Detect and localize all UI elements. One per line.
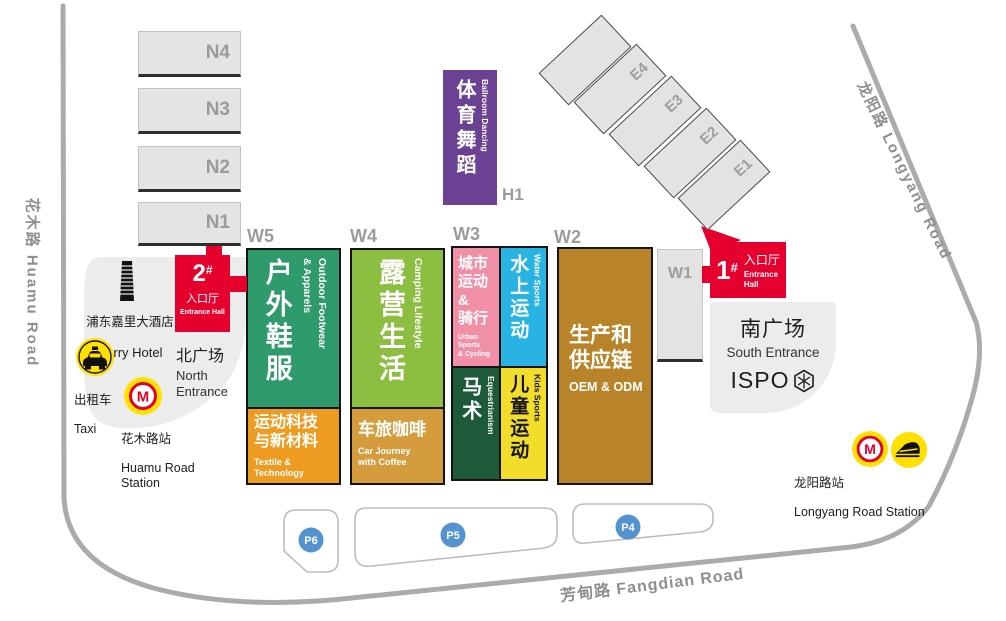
hall-n1: N1 — [138, 202, 241, 246]
car-title-en: Car Journey with Coffee — [358, 446, 437, 468]
taxi-zh: 出租车 — [74, 393, 112, 408]
kerry-hotel-zh: 浦东嘉里大酒店 — [80, 315, 180, 330]
taxi-label: 出租车 Taxi — [74, 378, 112, 452]
equestrian-title-zh: 马术 — [456, 376, 485, 479]
urban-title-en: Urban Sports & Cycling — [458, 334, 494, 359]
water-title-en: Water Sports — [532, 254, 542, 366]
longyang-station-label: 龙阳路站 Longyang Road Station — [794, 461, 925, 535]
parking-badge-p6-label: P6 — [304, 535, 317, 547]
parking-lot-p4 — [573, 504, 713, 543]
hall-n3: N3 — [138, 88, 241, 134]
hall-e2-label: E2 — [696, 123, 721, 148]
svg-text:M: M — [864, 442, 876, 458]
camping-title-zh: 露营生活 — [371, 258, 410, 407]
entrance-2-label-en: Entrance Hall — [175, 309, 230, 316]
pavilion-ballroom-dancing: 体育舞蹈 Ballroom Dancing — [443, 70, 497, 205]
pavilion-kids-sports: 儿童运动 Kids Sports — [501, 368, 547, 479]
entrance-1-number: 1 — [716, 255, 730, 285]
outdoor-title-zh: 户外鞋服 — [258, 258, 297, 407]
entrance-2-right-connector — [228, 276, 247, 292]
oem-title-zh: 生产和 供应链 — [569, 324, 632, 372]
taxi-icon — [75, 337, 115, 377]
hall-n2: N2 — [138, 146, 241, 192]
camping-title-en: Camping Lifestyle — [412, 258, 424, 407]
pavilion-oem-odm: 生产和 供应链 OEM & ODM — [557, 247, 653, 485]
pavilion-camping-lifestyle: 露营生活 Camping Lifestyle — [352, 250, 443, 407]
hall-e1-label: E1 — [730, 155, 755, 180]
outdoor-title-en: Outdoor Footwear & Apparels — [299, 258, 329, 407]
huamu-metro-icon: M — [123, 376, 163, 416]
hall-n2-label: N2 — [206, 157, 230, 179]
textile-title-zh: 运动科技 与新材料 — [254, 414, 333, 452]
section-label-w2: W2 — [554, 227, 581, 248]
venue-map: P6 P5 P4 N4 N3 N2 N1 E4 E3 E2 E1 体育舞蹈 Ba… — [0, 0, 1006, 621]
ballroom-title-en: Ballroom Dancing — [480, 79, 490, 205]
entrance-2-number: 2 — [192, 260, 205, 287]
taxi-en: Taxi — [74, 422, 112, 437]
pavilion-outdoor-footwear: 户外鞋服 Outdoor Footwear & Apparels — [248, 250, 339, 407]
pavilion-car-journey: 车旅咖啡 Car Journey with Coffee — [352, 407, 443, 483]
oem-title-en: OEM & ODM — [569, 380, 643, 394]
north-entrance: 北广场 North Entrance — [176, 342, 228, 399]
ballroom-title-zh: 体育舞蹈 — [450, 79, 479, 205]
huamu-station-zh: 花木路站 — [121, 432, 195, 447]
pavilion-water-sports: 水上运动 Water Sports — [501, 248, 547, 366]
pavilion-urban-sports: 城市 运动 & 骑行 Urban Sports & Cycling — [453, 248, 499, 366]
south-entrance-zh: 南广场 — [710, 313, 836, 343]
kids-title-en: Kids Sports — [532, 374, 542, 479]
urban-title-zh: 城市 运动 & 骑行 — [458, 255, 494, 328]
ispo-hexagon-logo — [793, 369, 815, 393]
entrance-1-label-zh: 入口厅 — [744, 251, 780, 268]
hall-n1-label: N1 — [206, 212, 230, 234]
entrance-2-label-zh: 入口厅 — [175, 290, 230, 306]
huamu-station-label: 花木路站 Huamu Road Station — [121, 417, 195, 506]
kerry-hotel-icon — [116, 259, 138, 301]
south-entrance-en: South Entrance — [710, 345, 836, 360]
textile-title-en: Textile & Technology — [254, 457, 333, 478]
equestrian-title-en: Equestrianism — [486, 376, 496, 479]
parking-badge-p6: P6 — [299, 528, 324, 553]
water-title-zh: 水上运动 — [504, 254, 531, 366]
pavilion-w4: 露营生活 Camping Lifestyle 车旅咖啡 Car Journey … — [350, 248, 445, 485]
hall-n3-label: N3 — [206, 99, 230, 121]
pavilion-textile-technology: 运动科技 与新材料 Textile & Technology — [248, 407, 339, 483]
parking-badge-p5: P5 — [441, 523, 466, 548]
car-title-zh: 车旅咖啡 — [358, 415, 437, 440]
pavilion-w5: 户外鞋服 Outdoor Footwear & Apparels 运动科技 与新… — [246, 248, 341, 485]
huamu-station-en: Huamu Road Station — [121, 461, 195, 491]
longyang-station-zh: 龙阳路站 — [794, 476, 925, 491]
pavilion-equestrianism: 马术 Equestrianism — [453, 368, 499, 479]
north-entrance-en: North Entrance — [176, 368, 228, 399]
entrance-1-label-en: Entrance Hall — [744, 270, 780, 289]
north-entrance-zh: 北广场 — [176, 342, 228, 366]
hall-w1-label: W1 — [658, 265, 702, 283]
parking-badge-p5-label: P5 — [446, 530, 459, 542]
ispo-wordmark: ISPO — [731, 367, 790, 394]
pavilion-w3: 城市 运动 & 骑行 Urban Sports & Cycling 水上运动 W… — [451, 246, 548, 481]
road-label-huamu: 花木路 Huamu Road — [23, 162, 44, 404]
parking-badge-p4-label: P4 — [621, 522, 635, 534]
parking-badge-p4: P4 — [616, 515, 641, 540]
hall-e3-label: E3 — [661, 91, 686, 116]
hall-h1-label: H1 — [502, 185, 524, 205]
hall-n4-label: N4 — [206, 42, 230, 64]
section-label-w4: W4 — [350, 226, 377, 247]
longyang-station-en: Longyang Road Station — [794, 505, 925, 520]
svg-text:M: M — [137, 389, 150, 406]
hall-n4: N4 — [138, 31, 241, 77]
entrance-2-number-sup: # — [206, 263, 213, 277]
section-label-w3: W3 — [453, 224, 480, 245]
hall-e4-label: E4 — [626, 59, 651, 84]
hall-w1: W1 — [657, 249, 703, 362]
entrance-hall-2: 2# 入口厅 Entrance Hall — [175, 255, 230, 332]
section-label-w5: W5 — [247, 226, 274, 247]
entrance-1-number-sup: # — [731, 260, 738, 275]
kids-title-zh: 儿童运动 — [504, 374, 531, 479]
entrance-hall-1: 1# 入口厅 Entrance Hall — [710, 242, 786, 298]
